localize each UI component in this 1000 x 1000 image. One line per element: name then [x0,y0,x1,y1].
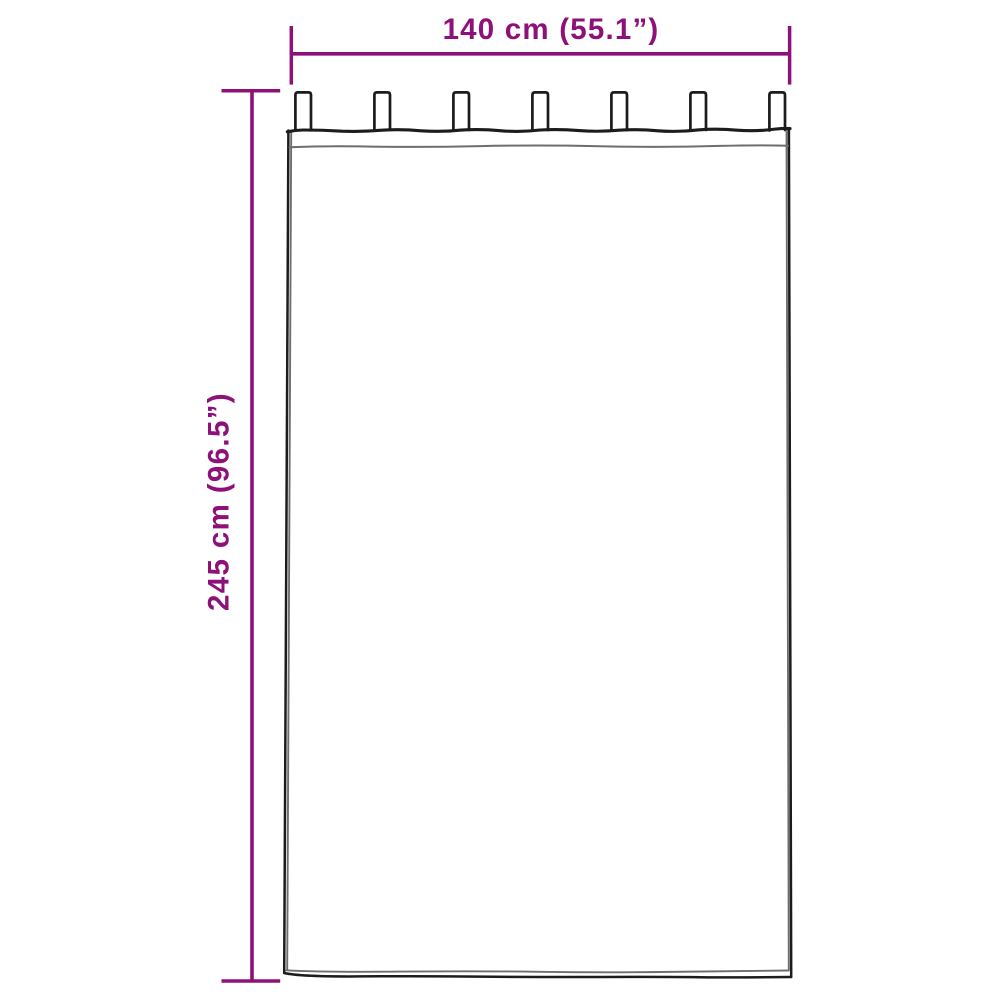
svg-text:245 cm (96.5”): 245 cm (96.5”) [202,392,235,611]
svg-text:140 cm (55.1”): 140 cm (55.1”) [443,13,660,46]
